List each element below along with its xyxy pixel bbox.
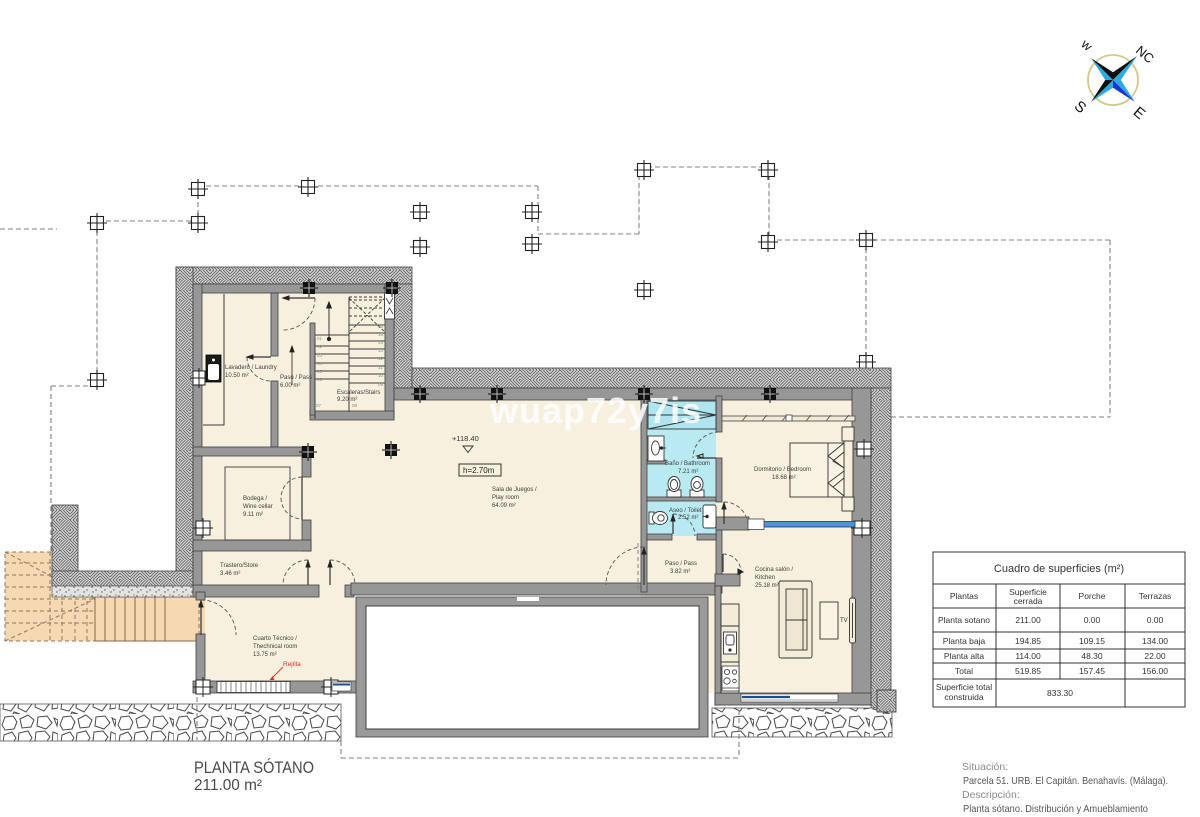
svg-text:Situación:: Situación: <box>962 761 1008 773</box>
svg-text:519.85: 519.85 <box>1015 666 1041 676</box>
svg-text:05: 05 <box>317 369 323 374</box>
svg-text:Descripción:: Descripción: <box>962 789 1020 801</box>
svg-text:211.00: 211.00 <box>1015 615 1041 625</box>
svg-text:Trastero/Store: Trastero/Store <box>220 563 259 569</box>
svg-text:22.00: 22.00 <box>1144 651 1166 661</box>
svg-text:S: S <box>1071 98 1090 117</box>
svg-text:12: 12 <box>378 356 384 361</box>
svg-text:Planta alta: Planta alta <box>944 651 984 661</box>
svg-text:E: E <box>1130 104 1149 123</box>
svg-text:Wine cellar: Wine cellar <box>243 504 273 510</box>
svg-text:Bodega /: Bodega / <box>243 496 267 502</box>
svg-text:156.00: 156.00 <box>1142 666 1168 676</box>
svg-text:25.18 m²: 25.18 m² <box>755 583 779 589</box>
svg-text:833.30: 833.30 <box>1047 688 1073 698</box>
svg-text:18.68 m²: 18.68 m² <box>772 475 796 481</box>
svg-text:Planta sótano. Distribución y: Planta sótano. Distribución y Amueblamie… <box>963 803 1148 815</box>
svg-text:construida: construida <box>944 692 983 702</box>
svg-text:11: 11 <box>378 365 383 370</box>
svg-text:3.46 m²: 3.46 m² <box>220 571 240 577</box>
svg-text:06: 06 <box>317 377 323 382</box>
svg-text:Planta baja: Planta baja <box>943 636 986 646</box>
svg-text:Rejilla: Rejilla <box>283 661 301 668</box>
svg-text:01: 01 <box>317 336 323 341</box>
svg-text:0.00: 0.00 <box>1147 615 1164 625</box>
svg-text:64.09 m²: 64.09 m² <box>492 503 516 509</box>
svg-text:Planta sotano: Planta sotano <box>938 615 990 625</box>
svg-text:Plantas: Plantas <box>950 591 978 601</box>
svg-text:194.85: 194.85 <box>1015 636 1041 646</box>
svg-text:h=2.70m: h=2.70m <box>463 466 495 475</box>
svg-text:Parcela 51. URB. El Capitán. B: Parcela 51. URB. El Capitán. Benahavís. … <box>963 775 1168 787</box>
svg-text:15: 15 <box>378 332 384 337</box>
svg-text:Superficie total: Superficie total <box>936 682 992 692</box>
svg-text:Sala de Juegos /: Sala de Juegos / <box>492 487 537 493</box>
svg-text:Play room: Play room <box>492 495 519 501</box>
svg-text:02: 02 <box>317 344 323 349</box>
svg-text:134.00: 134.00 <box>1142 636 1168 646</box>
svg-text:14: 14 <box>378 340 384 345</box>
svg-text:6.00 m²: 6.00 m² <box>280 383 300 389</box>
svg-text:10: 10 <box>378 373 384 378</box>
svg-text:10.50 m²: 10.50 m² <box>225 373 249 379</box>
svg-text:114.00: 114.00 <box>1015 651 1041 661</box>
svg-text:2.52 m²: 2.52 m² <box>678 515 698 521</box>
svg-text:Cuarto Técnico /: Cuarto Técnico / <box>253 636 297 642</box>
svg-text:cerrada: cerrada <box>1014 596 1043 606</box>
svg-text:09: 09 <box>378 382 384 387</box>
svg-text:Kitchen: Kitchen <box>755 575 775 581</box>
svg-text:Cocina salón /: Cocina salón / <box>755 567 793 573</box>
svg-text:08: 08 <box>352 403 358 408</box>
svg-text:7.21 m²: 7.21 m² <box>678 469 698 475</box>
svg-text:211.00 m²: 211.00 m² <box>194 777 262 794</box>
svg-text:48.30: 48.30 <box>1081 651 1103 661</box>
svg-text:Escaleras/Stairs: Escaleras/Stairs <box>337 390 380 396</box>
svg-text:3.82 m²: 3.82 m² <box>670 569 690 575</box>
svg-text:Baño / Bathroom: Baño / Bathroom <box>665 461 710 467</box>
svg-text:PLANTA SÓTANO: PLANTA SÓTANO <box>194 758 314 777</box>
svg-text:TV: TV <box>840 618 848 624</box>
svg-text:+118.40: +118.40 <box>452 434 479 443</box>
svg-text:Terrazas: Terrazas <box>1139 591 1172 601</box>
svg-text:9.20 m²: 9.20 m² <box>337 397 357 403</box>
svg-text:04: 04 <box>317 361 323 366</box>
svg-text:Total: Total <box>955 666 973 676</box>
svg-text:wuap72y7is: wuap72y7is <box>489 390 702 431</box>
svg-text:0.00: 0.00 <box>1084 615 1101 625</box>
svg-text:Aseo / Toilet: Aseo / Toilet <box>669 508 702 514</box>
svg-text:Paso / Pass: Paso / Pass <box>665 561 697 567</box>
svg-text:109.15: 109.15 <box>1079 636 1105 646</box>
svg-text:Lavadero / Laundry: Lavadero / Laundry <box>225 365 277 371</box>
svg-text:13.75 m²: 13.75 m² <box>253 652 277 658</box>
svg-text:Dormitorio / Bedroom: Dormitorio / Bedroom <box>754 467 811 473</box>
svg-text:w: w <box>1078 36 1096 55</box>
svg-text:13: 13 <box>378 348 384 353</box>
svg-text:03: 03 <box>317 353 323 358</box>
svg-text:NC: NC <box>1133 43 1157 67</box>
svg-text:16: 16 <box>378 324 384 329</box>
svg-text:9.11 m²: 9.11 m² <box>243 512 263 518</box>
svg-text:07: 07 <box>316 403 322 408</box>
svg-text:Paso / Pass: Paso / Pass <box>280 375 312 381</box>
svg-text:Cuadro de superficies (m²): Cuadro de superficies (m²) <box>994 563 1124 575</box>
svg-text:Thechnical room: Thechnical room <box>253 644 297 650</box>
svg-text:157.45: 157.45 <box>1079 666 1105 676</box>
svg-text:Porche: Porche <box>1079 591 1106 601</box>
